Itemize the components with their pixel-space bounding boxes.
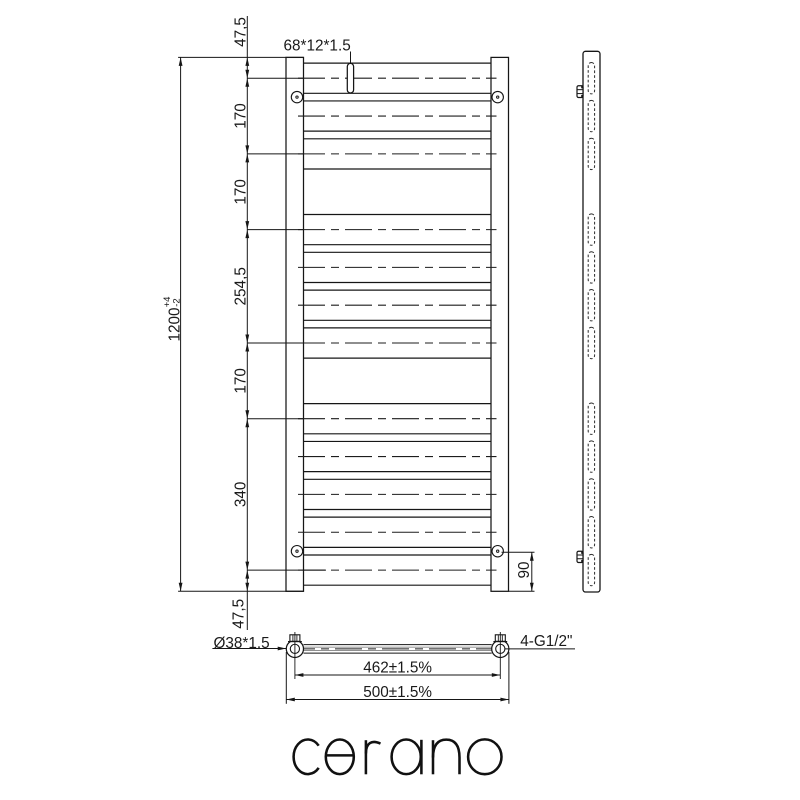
svg-text:68*12*1.5: 68*12*1.5 (284, 38, 351, 55)
svg-text:340: 340 (233, 482, 250, 508)
svg-text:170: 170 (233, 103, 250, 129)
svg-text:170: 170 (233, 179, 250, 205)
svg-text:462±1.5%: 462±1.5% (363, 660, 432, 677)
svg-text:90: 90 (516, 561, 533, 578)
svg-text:4-G1/2": 4-G1/2" (520, 633, 572, 650)
svg-text:47,5: 47,5 (233, 17, 250, 47)
svg-text:-2: -2 (171, 298, 182, 306)
svg-text:500±1.5%: 500±1.5% (363, 684, 432, 701)
svg-text:Ø38*1.5: Ø38*1.5 (214, 635, 270, 652)
svg-text:170: 170 (233, 368, 250, 394)
svg-text:1200: 1200 (166, 307, 183, 341)
svg-text:254,5: 254,5 (233, 267, 250, 305)
svg-text:47,5: 47,5 (231, 599, 248, 629)
